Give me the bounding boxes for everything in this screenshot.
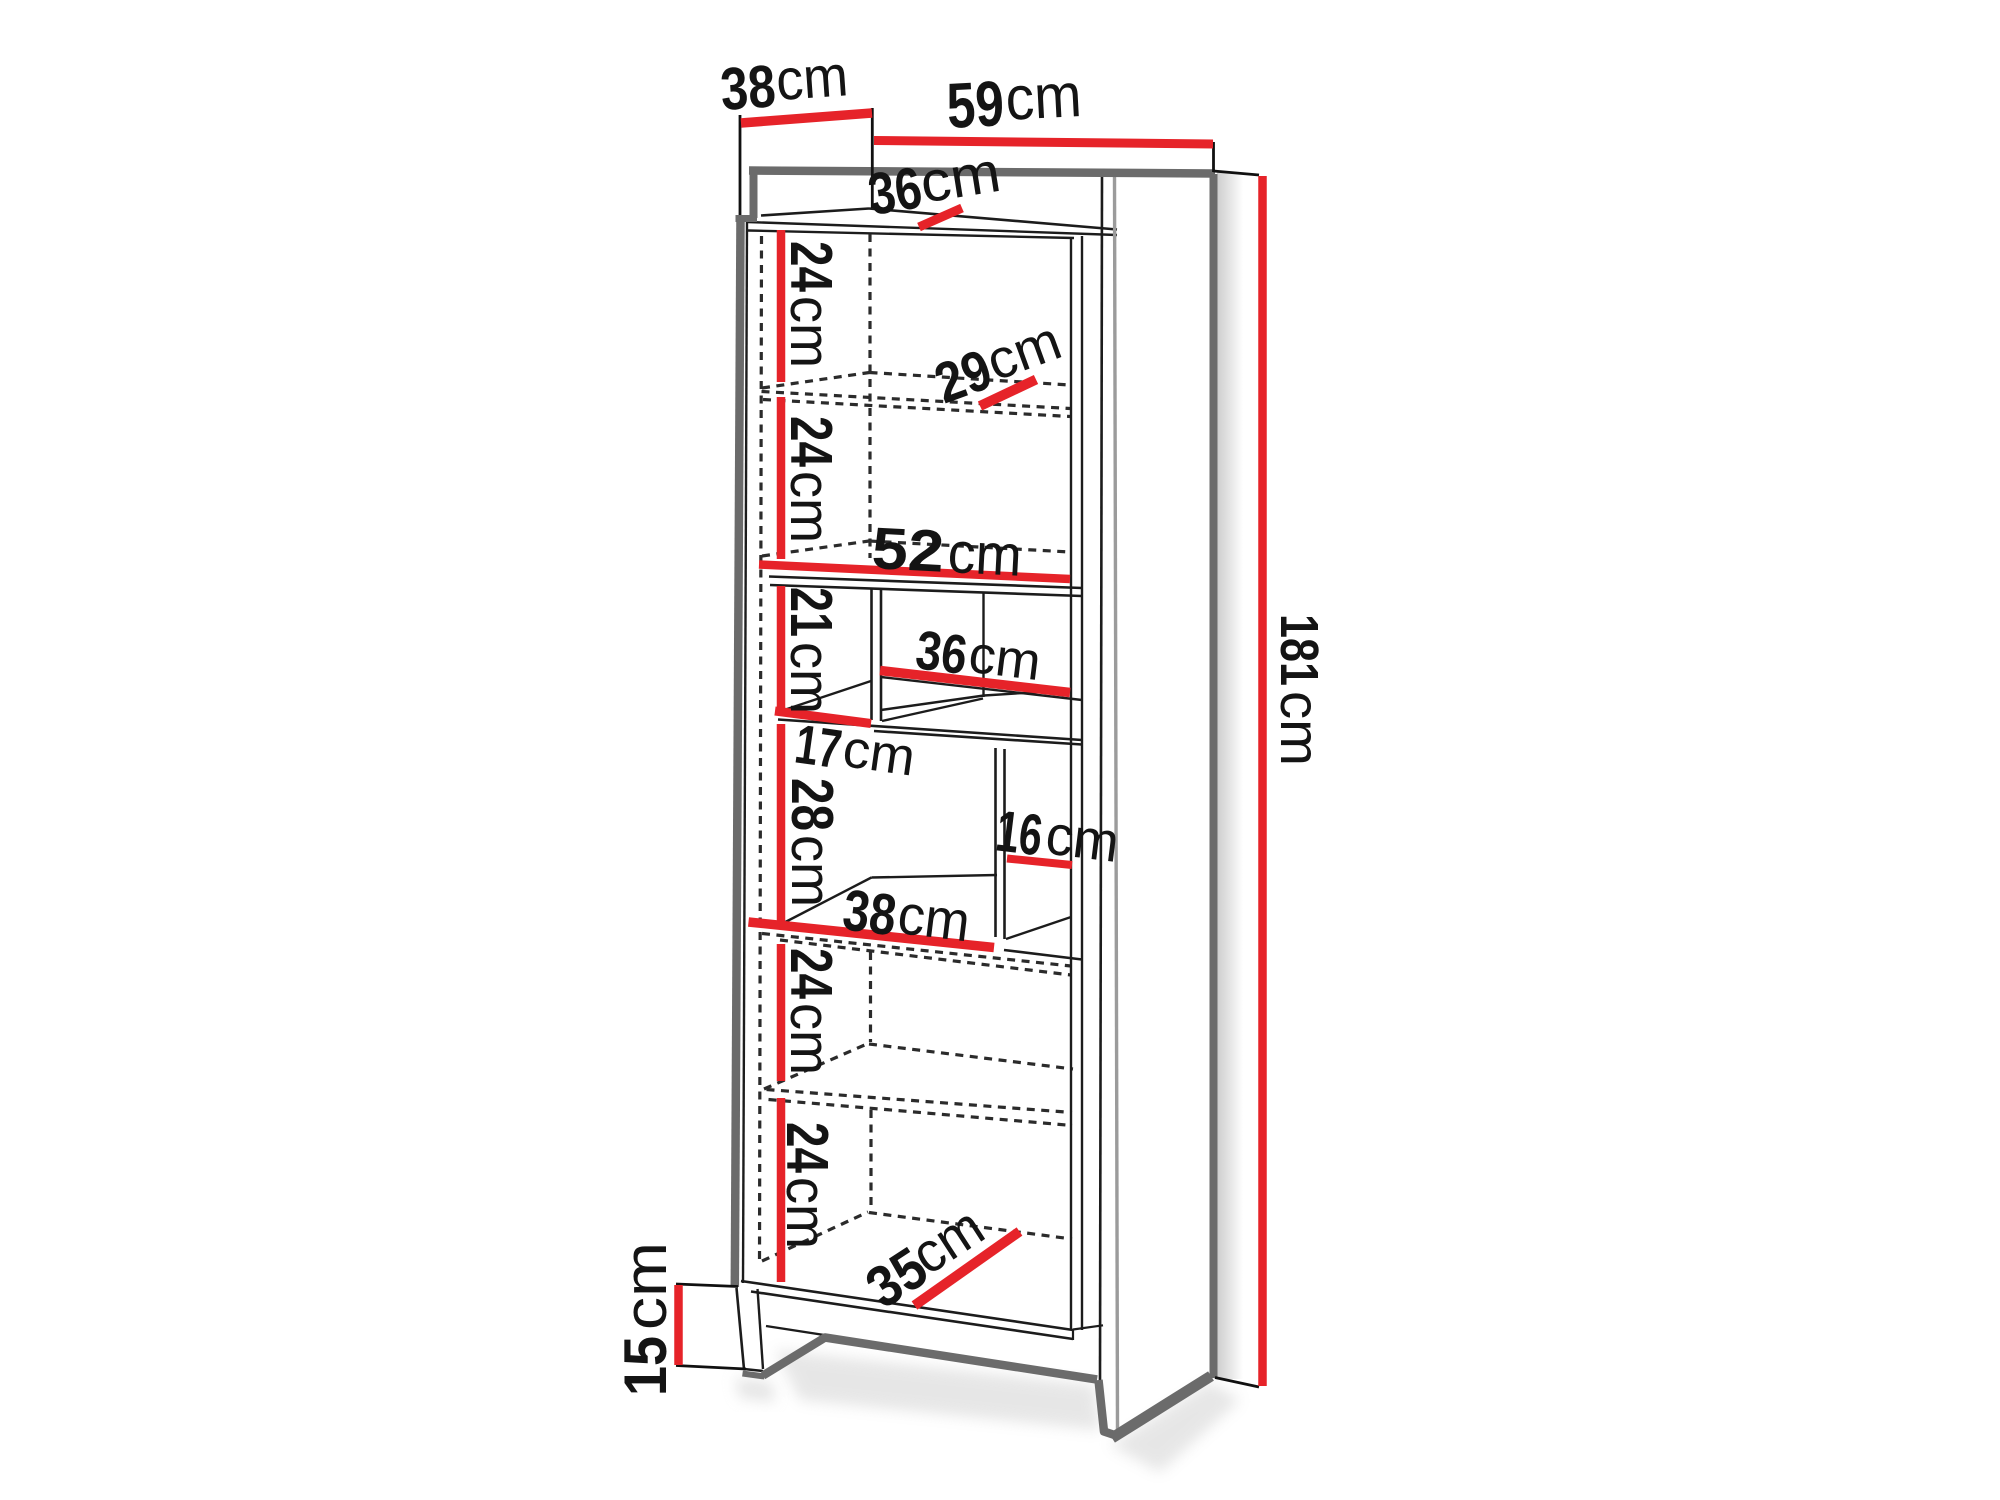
svg-text:24: 24 — [778, 241, 844, 292]
svg-text:24: 24 — [778, 948, 844, 999]
svg-text:38: 38 — [839, 877, 900, 948]
svg-text:21: 21 — [778, 587, 844, 637]
svg-text:cm: cm — [916, 140, 1005, 216]
svg-text:28: 28 — [779, 778, 845, 831]
svg-text:cm: cm — [778, 471, 842, 543]
svg-text:15: 15 — [612, 1336, 679, 1396]
svg-text:cm: cm — [839, 719, 919, 787]
svg-text:24: 24 — [774, 1122, 840, 1173]
svg-text:17: 17 — [791, 712, 845, 780]
svg-text:38: 38 — [718, 52, 778, 123]
svg-text:cm: cm — [1269, 691, 1332, 766]
svg-text:cm: cm — [778, 642, 842, 714]
svg-text:cm: cm — [778, 296, 842, 368]
svg-text:cm: cm — [946, 520, 1023, 589]
svg-text:24: 24 — [778, 416, 844, 467]
svg-text:cm: cm — [1043, 802, 1123, 873]
svg-text:cm: cm — [774, 43, 850, 113]
svg-text:cm: cm — [1004, 61, 1084, 134]
svg-text:52: 52 — [870, 515, 945, 585]
svg-text:cm: cm — [778, 1003, 842, 1075]
svg-text:59: 59 — [945, 67, 1006, 142]
svg-text:181: 181 — [1269, 614, 1329, 686]
svg-text:16: 16 — [992, 798, 1046, 868]
svg-text:36: 36 — [913, 618, 971, 686]
svg-text:cm: cm — [779, 835, 843, 907]
svg-text:cm: cm — [612, 1242, 679, 1330]
svg-text:cm: cm — [966, 625, 1045, 692]
svg-text:cm: cm — [774, 1177, 838, 1249]
svg-text:cm: cm — [894, 882, 973, 953]
